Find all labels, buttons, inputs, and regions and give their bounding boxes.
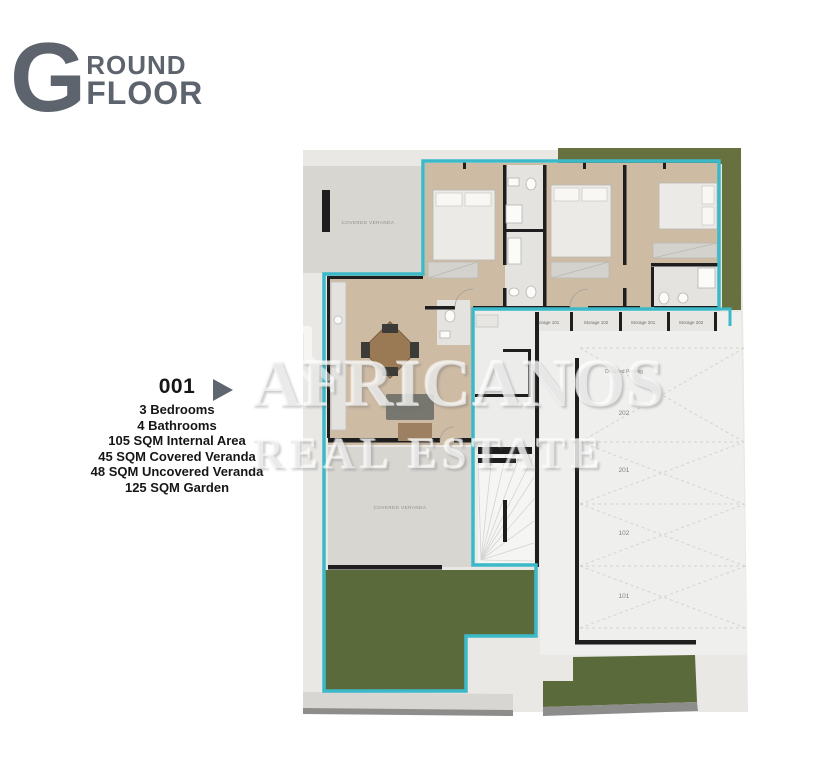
sofa <box>386 394 434 420</box>
covered-veranda-top-label: COVERED VERANDA <box>342 220 395 225</box>
kitchen-sink <box>334 316 342 324</box>
parking-wall-vertical <box>575 358 579 644</box>
bathroom-column <box>505 165 545 309</box>
kitchen-counter <box>331 282 346 430</box>
garden-top-wall <box>328 565 442 570</box>
parking-area: Disabled Parking 202 201 102 101 <box>540 312 747 655</box>
bottom-retaining-band <box>303 692 513 716</box>
floor-plan: COVERED VERANDA Disabled Parking 202 201… <box>0 0 818 767</box>
coffee-table <box>398 423 432 441</box>
parking-surface <box>540 312 747 655</box>
parking-wall-horizontal <box>575 640 696 645</box>
disabled-parking-label: Disabled Parking <box>605 369 643 375</box>
parking-spot-201: 201 <box>619 467 630 474</box>
parking-spot-101: 101 <box>619 593 630 600</box>
parking-spot-102: 102 <box>619 530 630 537</box>
bed-2 <box>551 185 611 278</box>
stairwell-wall <box>535 312 539 567</box>
storage-202-label: Storage 202 <box>679 320 704 325</box>
storage-row: Storage 101 Storage 102 Storage 201 Stor… <box>521 312 717 331</box>
storage-201-label: Storage 201 <box>631 320 656 325</box>
storage-102-label: Storage 102 <box>584 320 609 325</box>
bed-3 <box>653 183 717 258</box>
covered-veranda-bottom-label: COVERED VERANDA <box>374 505 427 510</box>
veranda-wall-segment <box>322 190 330 232</box>
parking-spot-202: 202 <box>619 410 630 417</box>
page: G ROUND FLOOR 001 3 Bedrooms 4 Bathrooms… <box>0 0 818 767</box>
stairwell <box>473 311 539 567</box>
lower-veranda: COVERED VERANDA <box>328 447 473 567</box>
